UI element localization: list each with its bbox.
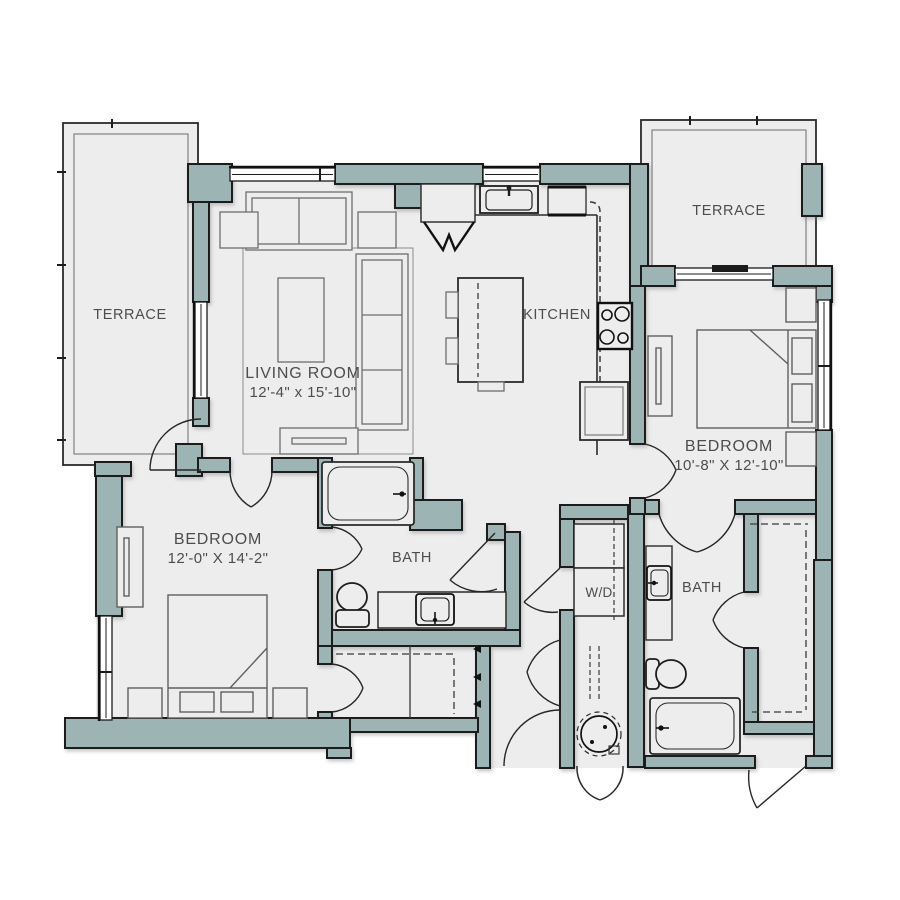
bedroom-right-label: BEDROOM	[685, 438, 773, 455]
bathtub	[650, 698, 740, 754]
bath-main-label: BATH	[392, 550, 432, 566]
sofa	[246, 192, 352, 250]
bedroom-left-window	[99, 615, 112, 721]
kitchen-sink	[480, 185, 538, 213]
washer	[574, 524, 624, 568]
floor-plan-drawing: TERRACE TERRACE LIVING ROOM 12'-4" x 15'…	[0, 0, 900, 900]
bed	[168, 595, 267, 718]
living-room-label: LIVING ROOM	[245, 365, 360, 382]
bath-second-label: BATH	[682, 580, 722, 596]
nightstand	[273, 688, 307, 718]
bedroom-left-dims: 12'-0" X 14'-2"	[168, 550, 269, 567]
pillow	[221, 692, 253, 712]
kitchen-window	[482, 167, 541, 181]
laundry-label: W/D	[585, 585, 612, 600]
vanity-sink	[378, 592, 506, 628]
tv-console	[280, 428, 358, 454]
side-table	[358, 212, 396, 248]
nightstand	[786, 288, 816, 322]
bedroom-left-label: BEDROOM	[174, 531, 262, 548]
terrace-left-label: TERRACE	[93, 307, 167, 323]
living-room-window	[229, 167, 336, 181]
bed	[697, 330, 816, 428]
kitchen-island	[446, 278, 523, 391]
mechanical-closet-door	[577, 766, 623, 800]
toilet	[336, 583, 369, 627]
refrigerator	[580, 382, 628, 440]
exterior-door-right	[749, 766, 806, 808]
dishwasher	[548, 187, 586, 215]
pillow	[792, 384, 812, 422]
laundry-closet	[574, 520, 624, 620]
floor-plan-canvas: TERRACE TERRACE LIVING ROOM 12'-4" x 15'…	[0, 0, 900, 900]
dresser	[648, 336, 672, 416]
dresser	[117, 527, 143, 607]
living-room-dims: 12'-4" x 15'-10"	[250, 384, 357, 401]
stove	[598, 303, 632, 349]
nightstand	[786, 432, 816, 466]
bedroom-right-dims: 10'-8" X 12'-10"	[674, 457, 784, 474]
terrace-left	[57, 119, 198, 469]
sectional-chaise	[356, 254, 408, 430]
bedroom-right-window	[818, 299, 831, 431]
stool	[446, 292, 458, 318]
kitchen-label: KITCHEN	[523, 307, 591, 323]
vanity-sink	[646, 546, 672, 640]
coffee-table	[278, 278, 324, 362]
side-table	[220, 212, 258, 248]
stool	[446, 338, 458, 364]
pillow	[792, 338, 812, 374]
terrace-right	[641, 116, 816, 270]
toilet	[646, 659, 686, 689]
pillow	[180, 692, 214, 712]
bathtub	[322, 462, 414, 525]
nightstand	[128, 688, 162, 718]
terrace-right-label: TERRACE	[692, 203, 766, 219]
living-west-window	[194, 301, 207, 399]
